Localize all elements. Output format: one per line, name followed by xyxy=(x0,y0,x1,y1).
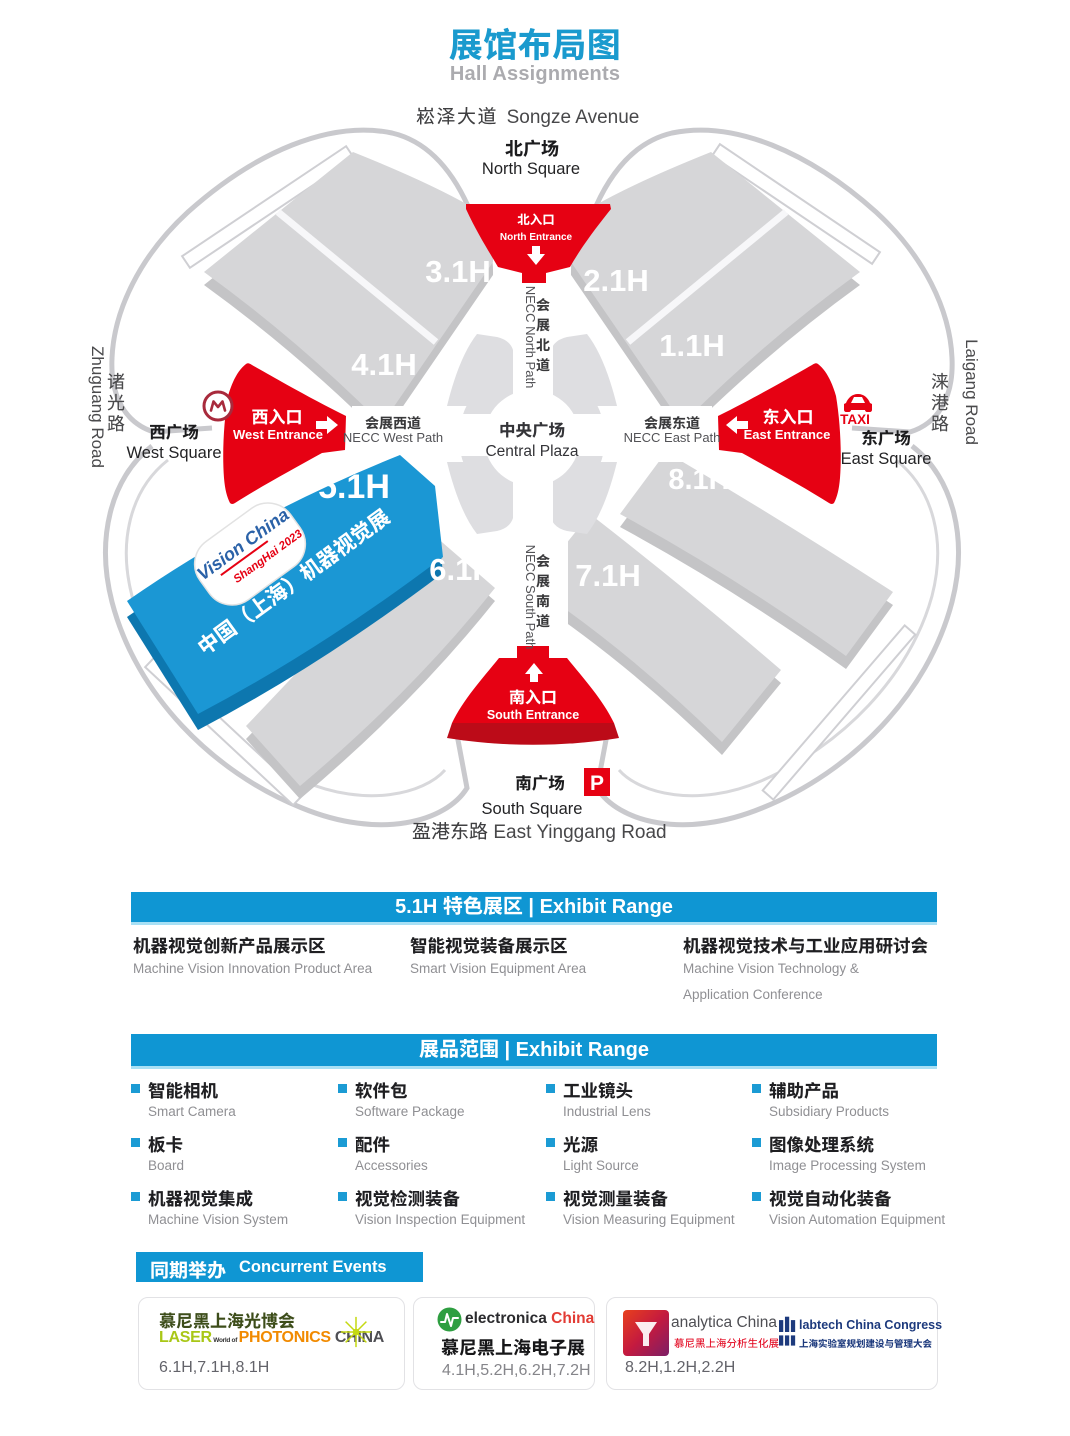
svg-text:1.1H: 1.1H xyxy=(659,328,724,363)
svg-text:NECC East Path: NECC East Path xyxy=(624,430,721,445)
svg-text:西入口: 西入口 xyxy=(252,408,303,427)
svg-text:5.1H: 5.1H xyxy=(318,468,390,506)
svg-text:东入口: 东入口 xyxy=(763,408,814,427)
svg-text:北广场: 北广场 xyxy=(505,139,559,159)
svg-text:3.1H: 3.1H xyxy=(425,254,490,289)
svg-text:崧泽大道: 崧泽大道 xyxy=(416,106,498,128)
svg-text:East Yinggang Road: East Yinggang Road xyxy=(493,822,666,843)
svg-text:6.1H: 6.1H xyxy=(429,552,494,587)
svg-text:South Entrance: South Entrance xyxy=(487,708,579,722)
svg-text:NECC West Path: NECC West Path xyxy=(343,430,443,445)
svg-text:盈港东路: 盈港东路 xyxy=(412,821,488,843)
svg-text:TAXI: TAXI xyxy=(840,412,870,427)
svg-text:North Square: North Square xyxy=(482,160,580,178)
svg-text:7.1H: 7.1H xyxy=(575,558,640,593)
svg-text:East Entrance: East Entrance xyxy=(744,427,831,442)
svg-text:NECC North Path: NECC North Path xyxy=(523,286,538,389)
svg-text:Laigang Road: Laigang Road xyxy=(962,339,981,445)
svg-text:West Entrance: West Entrance xyxy=(233,427,323,442)
svg-text:诸: 诸 xyxy=(107,372,125,392)
svg-text:NECC South Path: NECC South Path xyxy=(523,545,538,650)
svg-text:港: 港 xyxy=(931,393,949,413)
svg-text:北入口: 北入口 xyxy=(517,213,555,227)
svg-text:西广场: 西广场 xyxy=(149,423,199,442)
svg-text:中央广场: 中央广场 xyxy=(499,421,565,440)
svg-text:路: 路 xyxy=(931,414,949,434)
svg-text:2.1H: 2.1H xyxy=(583,263,648,298)
svg-text:8.1H: 8.1H xyxy=(668,464,729,496)
svg-text:涞: 涞 xyxy=(931,372,949,392)
svg-text:会展东道: 会展东道 xyxy=(644,415,700,431)
svg-text:West Square: West Square xyxy=(126,444,221,462)
svg-text:North Entrance: North Entrance xyxy=(500,232,573,243)
svg-text:East Square: East Square xyxy=(841,450,932,468)
svg-text:Zhuguang Road: Zhuguang Road xyxy=(88,346,107,468)
svg-text:南广场: 南广场 xyxy=(515,774,565,793)
svg-text:Songze Avenue: Songze Avenue xyxy=(507,107,640,128)
svg-text:路: 路 xyxy=(107,414,125,434)
svg-text:4.1H: 4.1H xyxy=(351,347,416,382)
svg-text:东广场: 东广场 xyxy=(861,429,911,448)
svg-text:Central Plaza: Central Plaza xyxy=(485,443,578,460)
svg-text:South Square: South Square xyxy=(482,800,583,818)
svg-text:会展西道: 会展西道 xyxy=(365,415,421,431)
svg-text:光: 光 xyxy=(107,393,125,413)
svg-text:P: P xyxy=(590,772,604,795)
svg-text:南入口: 南入口 xyxy=(509,689,557,707)
